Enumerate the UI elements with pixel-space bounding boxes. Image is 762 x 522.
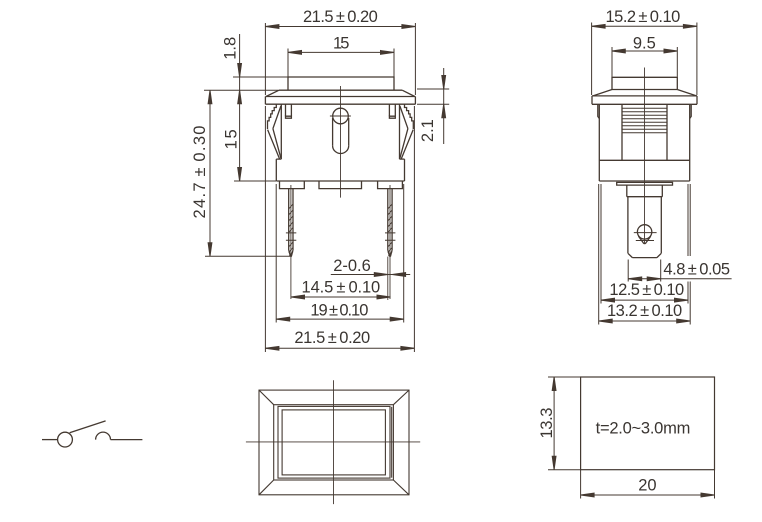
svg-text:1.8: 1.8 [221,37,239,60]
svg-text:t=2.0~3.0mm: t=2.0~3.0mm [596,419,691,437]
svg-text:15: 15 [223,129,241,149]
svg-text:9.5: 9.5 [633,34,656,52]
svg-text:12.5 ± 0.10: 12.5 ± 0.10 [609,281,684,299]
svg-text:14.5 ± 0.10: 14.5 ± 0.10 [302,279,381,297]
svg-text:4.8 ± 0.05: 4.8 ± 0.05 [663,261,730,279]
svg-text:20: 20 [638,476,656,494]
svg-text:2.1: 2.1 [419,119,437,142]
svg-text:19 ± 0.10: 19 ± 0.10 [310,301,368,319]
svg-text:13.3: 13.3 [538,408,556,439]
svg-text:21.5 ± 0.20: 21.5 ± 0.20 [294,329,370,347]
svg-text:21.5 ± 0.20: 21.5 ± 0.20 [303,8,378,26]
svg-text:15.2 ± 0.10: 15.2 ± 0.10 [606,8,681,26]
svg-text:15: 15 [333,34,350,52]
svg-text:2-0.6: 2-0.6 [333,257,371,275]
svg-text:13.2 ± 0.10: 13.2 ± 0.10 [607,302,682,320]
svg-text:24.7 ± 0.30: 24.7 ± 0.30 [191,126,209,219]
